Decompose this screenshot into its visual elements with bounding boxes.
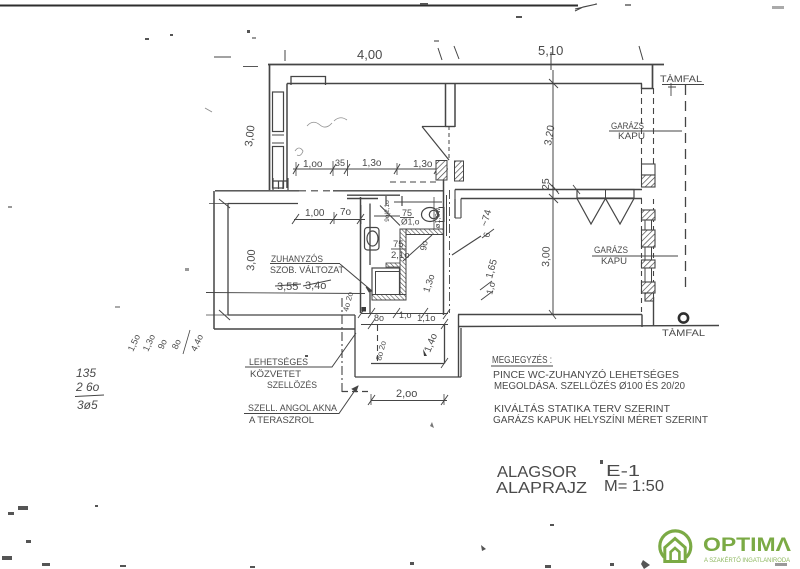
svg-text:1,o: 1,o xyxy=(484,281,497,296)
svg-text:1,3o: 1,3o xyxy=(141,333,157,353)
svg-text:1,4o: 1,4o xyxy=(423,332,441,355)
svg-text:2,1o: 2,1o xyxy=(391,250,410,261)
svg-text:9o|2,1o: 9o|2,1o xyxy=(384,200,391,222)
svg-text:ALAPRAJZ: ALAPRAJZ xyxy=(496,480,587,497)
svg-text:7o: 7o xyxy=(340,207,352,218)
svg-text:3,00: 3,00 xyxy=(540,246,553,267)
svg-text:135: 135 xyxy=(76,366,96,380)
svg-text:2,oo: 2,oo xyxy=(396,388,417,400)
svg-text:OPTIMΛ: OPTIMΛ xyxy=(703,535,791,556)
svg-text:4,4o: 4,4o xyxy=(189,333,205,353)
svg-text:4,00: 4,00 xyxy=(357,47,382,62)
svg-text:ø1,0w: ø1,0w xyxy=(433,207,442,228)
svg-text:9o: 9o xyxy=(156,338,169,351)
svg-text:35: 35 xyxy=(335,158,345,168)
svg-text:3,20: 3,20 xyxy=(542,124,557,146)
svg-text:SZELLÖZÉS: SZELLÖZÉS xyxy=(267,380,317,391)
svg-text:8o 2o: 8o 2o xyxy=(374,339,388,361)
svg-text:75: 75 xyxy=(393,239,404,250)
svg-text:A SZAKÉRTŐ INGATLANIRODA: A SZAKÉRTŐ INGATLANIRODA xyxy=(704,555,791,564)
svg-text:1,5o: 1,5o xyxy=(126,333,142,353)
svg-text:M= 1:50: M= 1:50 xyxy=(604,478,664,495)
svg-text:KIVÁLTÁS STATIKA TERV SZERINT: KIVÁLTÁS STATIKA TERV SZERINT xyxy=(494,402,670,415)
svg-text:1,3o: 1,3o xyxy=(413,159,433,170)
svg-text:GARÁZS: GARÁZS xyxy=(611,121,644,131)
svg-text:~74: ~74 xyxy=(479,208,494,228)
svg-text:1,3o: 1,3o xyxy=(421,273,437,294)
svg-text:MEGJEGYZÉS :: MEGJEGYZÉS : xyxy=(492,353,552,366)
svg-text:SZELL. ANGOL AKNA: SZELL. ANGOL AKNA xyxy=(248,403,338,414)
svg-text:A TERASZROL: A TERASZROL xyxy=(249,415,314,426)
svg-text:3,55: 3,55 xyxy=(277,281,298,293)
svg-text:3,00: 3,00 xyxy=(243,125,258,148)
svg-text:9o: 9o xyxy=(418,240,430,252)
svg-text:KAPU: KAPU xyxy=(618,131,645,141)
svg-text:3,00: 3,00 xyxy=(245,249,258,271)
svg-text:8o: 8o xyxy=(374,313,384,323)
svg-text:LEHETSÉGES: LEHETSÉGES xyxy=(249,357,308,368)
svg-text:3ø5: 3ø5 xyxy=(77,398,98,412)
svg-text:1,00: 1,00 xyxy=(305,208,325,219)
svg-text:2 6o: 2 6o xyxy=(75,380,100,394)
svg-text:PINCE WC-ZUHANYZÓ LEHETSÉGES: PINCE WC-ZUHANYZÓ LEHETSÉGES xyxy=(493,368,679,381)
svg-text:TÀMFAL: TÀMFAL xyxy=(662,328,705,339)
svg-text:ALAGSOR: ALAGSOR xyxy=(497,464,577,481)
svg-text:1,65: 1,65 xyxy=(484,258,500,280)
svg-text:TÀMFAL: TÀMFAL xyxy=(660,74,702,85)
svg-text:1,1o: 1,1o xyxy=(417,313,436,324)
svg-text:KAPU: KAPU xyxy=(601,256,627,266)
svg-text:GARÁZS: GARÁZS xyxy=(594,245,628,255)
svg-text:GARÁZS KAPUK HELYSZÍNI MÉRET S: GARÁZS KAPUK HELYSZÍNI MÉRET SZERINT xyxy=(493,413,708,426)
svg-text:SZOB. VÁLTOZAT: SZOB. VÁLTOZAT xyxy=(270,265,344,276)
svg-text:25: 25 xyxy=(540,178,552,190)
svg-text:1,3o: 1,3o xyxy=(362,158,382,169)
svg-text:8o: 8o xyxy=(170,338,183,351)
svg-text:KÖZVETET: KÖZVETET xyxy=(250,369,301,380)
svg-text:5,10: 5,10 xyxy=(538,43,563,58)
svg-text:Ø1,o: Ø1,o xyxy=(401,217,420,227)
svg-text:1,o: 1,o xyxy=(399,310,412,320)
svg-text:1,oo: 1,oo xyxy=(303,159,323,170)
svg-text:MEGOLDÁSA. SZELLÖZÉS Ø100 ÉS 2: MEGOLDÁSA. SZELLÖZÉS Ø100 ÉS 20/20 xyxy=(494,379,685,392)
